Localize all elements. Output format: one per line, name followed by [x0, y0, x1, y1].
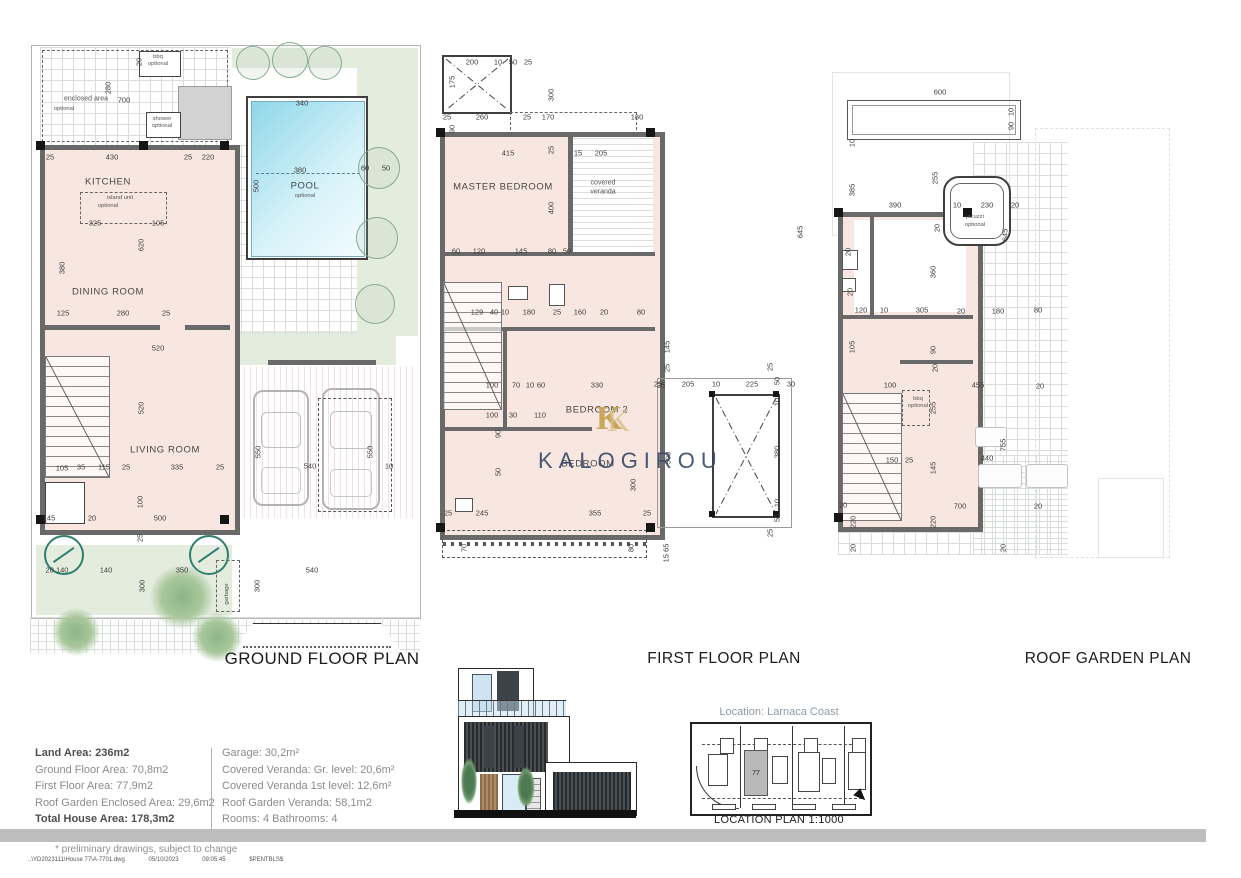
dim-label: 340	[296, 99, 309, 108]
dim-label: 150	[886, 456, 899, 465]
dim-label: 25	[216, 463, 224, 472]
dim-label: 105	[152, 219, 165, 228]
dim-label: 10	[880, 306, 888, 315]
dim-label: 25	[547, 146, 556, 154]
dim-label: 20	[999, 544, 1008, 552]
dim-label: 205	[595, 149, 608, 158]
dim-label: 20	[957, 307, 965, 316]
dim-label: 175	[448, 76, 457, 89]
dim-label: 10	[848, 139, 857, 147]
dim-label: 20 140	[46, 566, 69, 575]
dim-label: island unit	[107, 195, 133, 201]
dim-label: 25	[553, 308, 561, 317]
dim-label: 20	[933, 224, 942, 232]
room-label: DINING ROOM	[72, 287, 144, 298]
dim-label: 360	[929, 266, 938, 279]
dim-label: optional	[98, 203, 118, 209]
dim-label: 25	[444, 509, 452, 518]
dim-label: 20	[849, 544, 858, 552]
dim-label: 440	[981, 454, 994, 463]
dim-label: bbq	[153, 54, 163, 60]
dim-label: 180	[992, 307, 1005, 316]
dim-label: 50	[773, 377, 782, 385]
dim-label: 300	[547, 89, 556, 102]
dim-label: 60	[537, 381, 545, 390]
dim-label: 145	[43, 514, 56, 523]
room-label: POOL	[291, 181, 320, 192]
dim-label: 25	[654, 380, 662, 389]
dim-label: shower	[153, 116, 172, 122]
dim-label: 200	[466, 58, 479, 67]
logo-letter-shadow: K	[607, 402, 630, 439]
room-label: KITCHEN	[85, 177, 131, 188]
dim-label: 120	[855, 306, 868, 315]
dim-label: 220	[202, 153, 215, 162]
dim-label: 20	[839, 501, 847, 510]
dim-label: 25	[766, 363, 775, 371]
dim-label: optional	[54, 106, 74, 112]
dim-label: 220	[929, 516, 938, 529]
dim-label: 600	[934, 88, 947, 97]
dim-label: 180	[631, 113, 644, 122]
dim-label: 15 65	[662, 544, 671, 563]
dim-label: 25	[523, 113, 531, 122]
dim-label: 700	[954, 502, 967, 511]
dim-label: 20	[135, 58, 144, 66]
dim-label: 35	[77, 463, 85, 472]
dim-label: 60	[452, 247, 460, 256]
dim-label: 385	[848, 184, 857, 197]
dim-label: 10	[712, 380, 720, 389]
dim-label: 520	[152, 344, 165, 353]
dim-label: 80	[1034, 306, 1042, 315]
dim-label: 30	[787, 380, 795, 389]
dim-label: 520	[137, 402, 146, 415]
dim-label: enclosed area	[64, 96, 108, 103]
dim-label: 255	[931, 172, 940, 185]
dim-label: veranda	[590, 189, 615, 196]
dim-label: 550	[254, 446, 263, 459]
dim-label: optional	[965, 222, 985, 228]
dim-label: 500	[252, 180, 261, 193]
dim-label: 70	[460, 544, 469, 552]
dim-label: 325	[89, 219, 102, 228]
dim-label: 105	[848, 341, 857, 354]
dim-label: 400	[547, 202, 556, 215]
dim-label: 245	[476, 509, 489, 518]
dim-label: optional	[152, 123, 172, 129]
dim-label: jacuzzi	[966, 214, 984, 220]
dim-label: 755	[999, 439, 1008, 452]
dim-label: 620	[137, 239, 146, 252]
dim-label: 280	[117, 309, 130, 318]
room-label: LIVING ROOM	[130, 445, 200, 456]
dim-label: 105	[56, 464, 69, 473]
dim-label: 50	[382, 164, 390, 173]
dim-label: 30	[509, 411, 517, 420]
dim-label: 10	[501, 308, 509, 317]
dim-label: 220	[849, 516, 858, 529]
dim-label: 350	[176, 566, 189, 575]
dim-label: optional	[295, 193, 315, 199]
dim-label: 180	[523, 308, 536, 317]
dim-label: 20	[931, 364, 940, 372]
dim-label: 700	[118, 96, 131, 105]
dim-label: 100	[136, 496, 145, 509]
dim-label: 380	[58, 262, 67, 275]
dim-label: 20	[1034, 502, 1042, 511]
dim-label: 540	[304, 462, 317, 471]
dim-label: 300	[138, 580, 147, 593]
dim-label: 90	[929, 346, 938, 354]
dim-label: 20	[600, 308, 608, 317]
dim-label: 120	[473, 247, 486, 256]
dim-label: 100	[486, 381, 499, 390]
dim-label: 645	[796, 226, 805, 239]
dim-label: 260	[476, 113, 489, 122]
dim-label: covered	[591, 180, 616, 187]
dim-label: 160	[574, 308, 587, 317]
dim-label: 40	[490, 308, 498, 317]
dim-label: 90	[494, 430, 503, 438]
dim-label: 25	[524, 58, 532, 67]
dim-label: 80	[637, 308, 645, 317]
dim-label: 230	[981, 201, 994, 210]
dim-label: 20	[88, 514, 96, 523]
dim-label: 170	[542, 113, 555, 122]
watermark-text: KALOGIROU	[538, 448, 723, 474]
dim-label: 305	[916, 306, 929, 315]
dim-label: 645	[1001, 229, 1010, 242]
dim-label: 430	[106, 153, 119, 162]
dim-label: 455	[972, 381, 985, 390]
dim-label: 125	[57, 309, 70, 318]
dim-label: 10	[385, 462, 393, 471]
architectural-drawing-sheet: K K KALOGIROU 20bbqoptional700280enclose…	[0, 0, 1241, 878]
dim-label: 20	[844, 248, 853, 256]
dim-label: 129	[471, 308, 484, 317]
dim-label: 50	[494, 468, 503, 476]
dim-label: 255	[929, 402, 938, 415]
dim-label: 60	[361, 164, 369, 173]
dim-label: 20	[846, 288, 855, 296]
dim-label: 380	[294, 166, 307, 175]
dim-label: 100	[486, 411, 499, 420]
dim-label: 145	[663, 341, 672, 354]
dim-label: 90	[448, 125, 457, 133]
kalogirou-logo-icon: K K	[596, 400, 656, 446]
dim-label: 205	[682, 380, 695, 389]
dim-label: 10	[526, 381, 534, 390]
dim-label: 20	[1036, 382, 1044, 391]
dim-label: 10	[773, 398, 782, 406]
dim-label: 550	[366, 446, 375, 459]
dim-label: 25	[905, 456, 913, 465]
dim-label: 140	[100, 566, 113, 575]
dim-label: 25	[162, 309, 170, 318]
dim-label: 115	[98, 463, 110, 472]
dim-label: 25	[122, 463, 130, 472]
dim-label: 10	[953, 201, 961, 210]
dim-label: 330	[591, 381, 604, 390]
dim-label: 380	[773, 446, 782, 459]
dim-label: bbq	[913, 396, 923, 402]
dim-label: 10	[1007, 108, 1016, 116]
dim-label: 50	[509, 58, 517, 67]
dim-label: 355	[589, 509, 602, 518]
dim-label: optional	[908, 403, 928, 409]
dim-label: 10	[494, 58, 502, 67]
dim-label: 145	[929, 462, 938, 475]
dim-label: 25	[46, 153, 54, 162]
dim-label: 25	[136, 534, 145, 542]
dim-label: 15	[574, 149, 582, 158]
watermark: K K KALOGIROU	[538, 400, 718, 476]
dim-label: 415	[502, 149, 515, 158]
dim-label: 300	[629, 479, 638, 492]
dim-label: 25	[443, 113, 451, 122]
dim-label: 50	[773, 514, 782, 522]
dim-label: 25	[184, 153, 192, 162]
dim-label: 300	[253, 580, 262, 593]
dim-label: 540	[306, 566, 319, 575]
dim-label: 70	[512, 381, 520, 390]
dim-label: 390	[889, 201, 902, 210]
dim-label: 10	[773, 499, 782, 507]
dim-label: 25	[766, 529, 775, 537]
room-label: MASTER BEDROOM	[453, 182, 553, 193]
dim-label: 25	[663, 364, 672, 372]
dim-label: 225	[746, 380, 759, 389]
dim-label: 145	[515, 247, 528, 256]
dim-label: 100	[884, 381, 897, 390]
dim-label: 335	[171, 463, 184, 472]
dim-label: 80	[548, 247, 556, 256]
dim-label: optional	[148, 61, 168, 67]
dim-label: 80	[627, 544, 636, 552]
dim-label: 500	[154, 514, 167, 523]
dim-label: 280	[104, 82, 113, 95]
dim-label: 25	[643, 509, 651, 518]
dim-label: 50	[563, 247, 571, 256]
dim-label: 90	[1007, 122, 1016, 130]
dim-label: garbage	[224, 583, 230, 604]
dim-label: 20	[1011, 201, 1019, 210]
